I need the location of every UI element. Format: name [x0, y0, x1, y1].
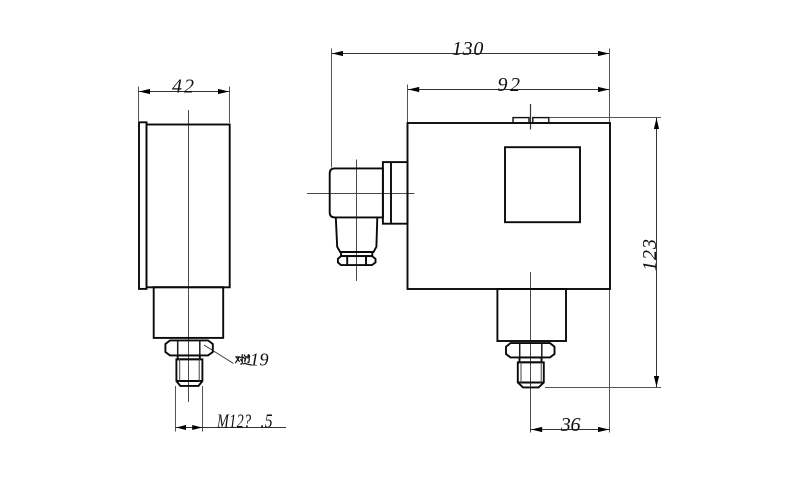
svg-text:19: 19 [250, 350, 269, 370]
svg-text:92: 92 [498, 74, 523, 96]
svg-text:.5: .5 [261, 410, 274, 432]
svg-text:M12?: M12? [216, 410, 251, 432]
svg-text:36: 36 [560, 414, 581, 436]
svg-text:123: 123 [639, 238, 661, 271]
svg-text:42: 42 [172, 75, 196, 97]
svg-text:130: 130 [452, 38, 484, 60]
